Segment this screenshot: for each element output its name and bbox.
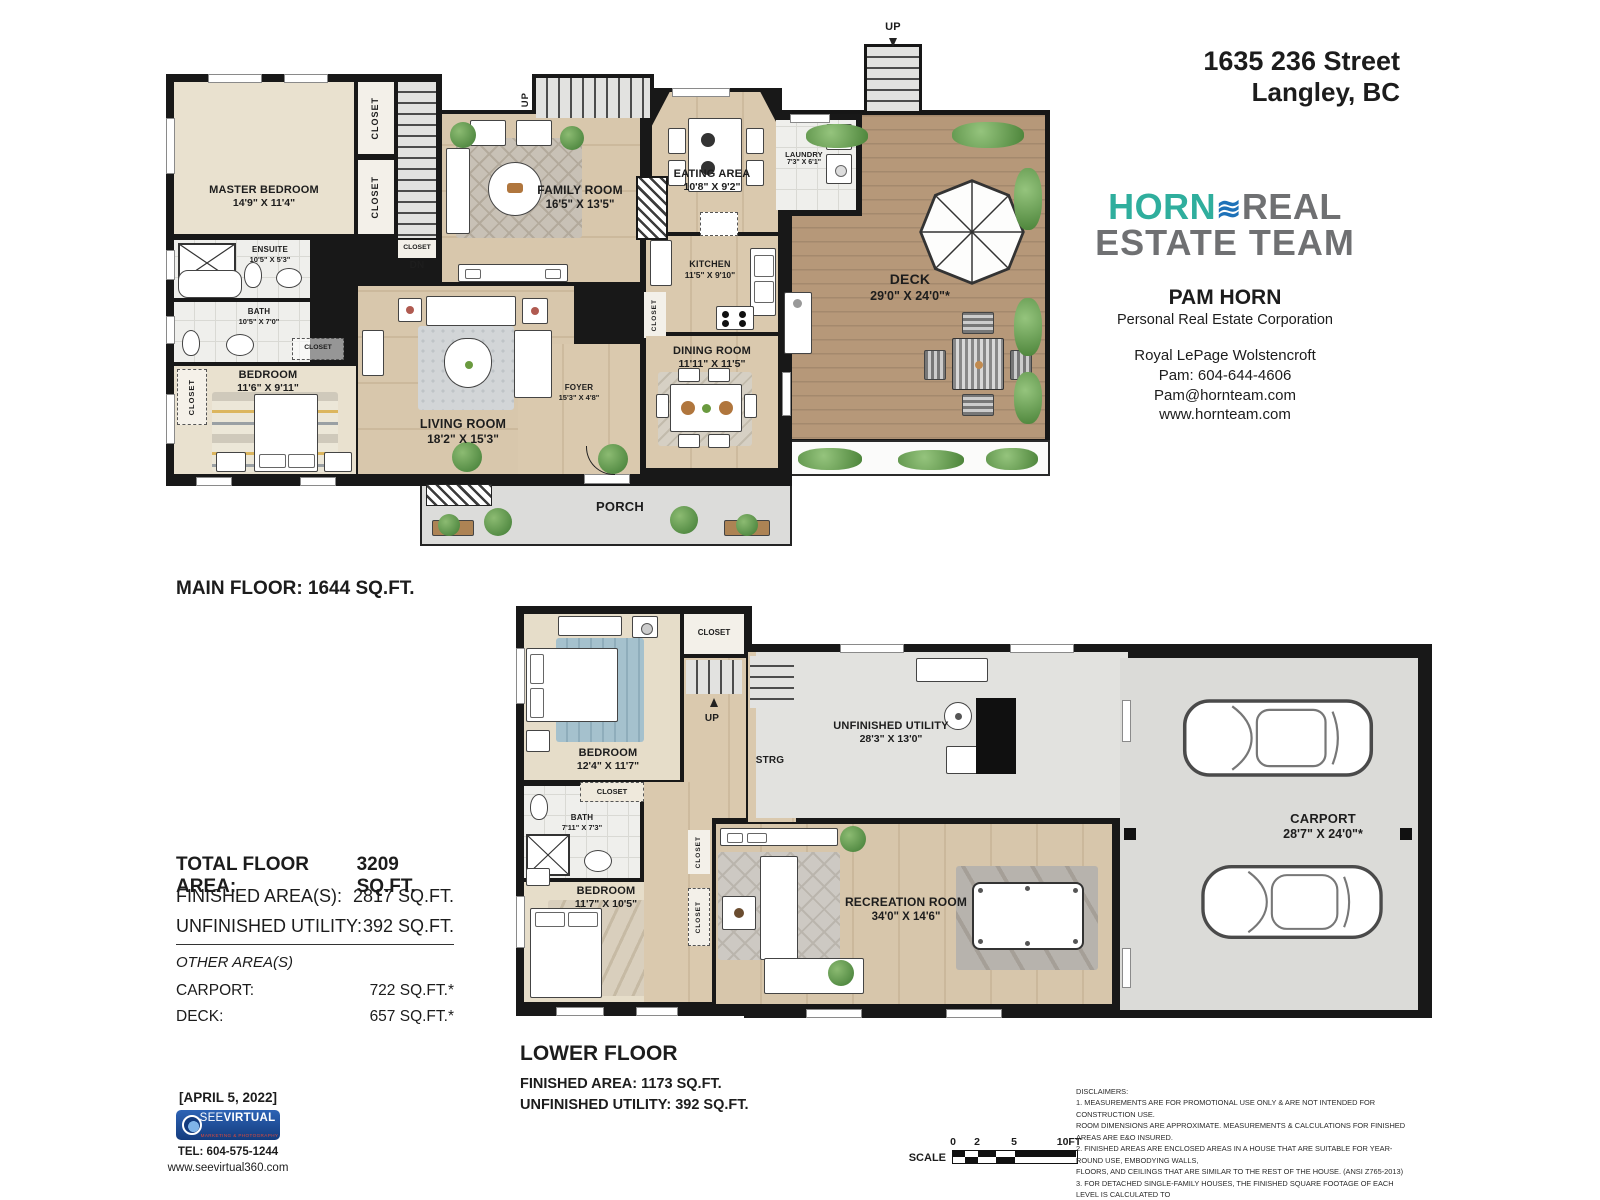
unfinished-area-row: UNFINISHED UTILITY: 392 SQ.FT. [176, 916, 454, 937]
window [166, 316, 175, 344]
closet-label: CLOSET [394, 244, 440, 251]
up-arrow-icon [710, 698, 718, 707]
door-opening [1122, 700, 1131, 742]
window [284, 74, 328, 83]
nightstand [216, 452, 246, 472]
stove [716, 306, 754, 330]
finished-area-label: FINISHED AREA(S): [176, 886, 342, 907]
shrub [798, 448, 862, 470]
window [516, 896, 525, 948]
summary-divider [176, 944, 454, 945]
stairs-down [398, 82, 436, 238]
deck-area-row: DECK: 657 SQ.FT.* [176, 1008, 454, 1026]
armchair [362, 330, 384, 376]
chair [744, 394, 757, 418]
plant [450, 122, 476, 148]
nightstand [324, 452, 352, 472]
lower-floor-title: LOWER FLOOR [520, 1042, 677, 1066]
contact-block: Royal LePage Wolstencroft Pam: 604-644-4… [1090, 346, 1360, 425]
unfinished-area-label: UNFINISHED UTILITY: [176, 916, 362, 937]
patio-umbrella [917, 177, 1027, 287]
up-arrow-icon [889, 38, 897, 47]
window [166, 118, 175, 174]
side-table [398, 298, 422, 322]
shrub [1014, 298, 1042, 356]
bed [530, 908, 602, 998]
shrub [986, 448, 1038, 470]
logo-virtual: VIRTUAL [224, 1112, 276, 1124]
plant [828, 960, 854, 986]
agent-website: www.hornteam.com [1090, 405, 1360, 425]
laundry-label: LAUNDRY7'3" X 6'1" [778, 148, 830, 170]
chair [746, 128, 764, 154]
porch-step [426, 484, 492, 506]
shrub [898, 450, 964, 470]
armchair [516, 120, 552, 146]
kitchen-island [700, 212, 738, 236]
porch-plant [736, 514, 758, 536]
other-areas-title: OTHER AREA(S) [176, 954, 293, 971]
deck-label: DECK 29'0" X 24'0"* [830, 272, 990, 304]
family-room-label: FAMILY ROOM16'5" X 13'5" [520, 182, 640, 214]
carport-label: CARPORT28'7" X 24'0"* [1228, 810, 1418, 844]
window [516, 648, 525, 704]
deck-area-value: 657 SQ.FT.* [370, 1008, 454, 1026]
agent-name: PAM HORN [1090, 286, 1360, 310]
closet-label: CLOSET [580, 787, 644, 796]
deck-stairs [864, 44, 922, 114]
closet-label: CLOSET [177, 370, 207, 424]
finished-area-value: 2817 SQ.FT. [353, 886, 454, 907]
window [672, 88, 730, 97]
porch-plant [484, 508, 512, 536]
address-line2: Langley, BC [1020, 77, 1400, 108]
agent-email: Pam@hornteam.com [1090, 386, 1360, 406]
seevirtual-tel: TEL: 604-575-1244 [150, 1146, 306, 1158]
window [946, 1009, 1002, 1018]
closet-label: CLOSET [644, 293, 666, 337]
ensuite-label: ENSUITE10'5" X 5'3" [232, 244, 308, 266]
deck-table [952, 338, 1004, 390]
closet-label: CLOSET [358, 84, 394, 152]
dining-table [670, 384, 742, 432]
window [840, 644, 904, 653]
shrub [952, 122, 1024, 148]
shrub [806, 124, 868, 148]
lower-bedroom-a-label: BEDROOM12'4" X 11'7" [538, 746, 678, 774]
carport-area-label: CARPORT: [176, 982, 254, 1000]
plant [560, 126, 584, 150]
logo-line2: ESTATE TEAM [1090, 225, 1360, 261]
kitchen-label: KITCHEN11'5" X 9'10" [664, 258, 756, 282]
seevirtual-web: www.seevirtual360.com [150, 1162, 306, 1174]
car-1 [1176, 694, 1380, 782]
disclaimer-line: 2. FINISHED AREAS ARE ENCLOSED AREAS IN … [1076, 1143, 1416, 1166]
window [196, 477, 232, 486]
strg-label: STRG [740, 754, 800, 768]
dining-room-label: DINING ROOM11'11" X 11'5" [650, 344, 774, 372]
logo-subtext: MARKETING & PHOTOGRAPHY [201, 1133, 279, 1138]
window [556, 1007, 604, 1016]
carport-area-row: CARPORT: 722 SQ.FT.* [176, 982, 454, 1000]
seevirtual-swoosh-icon [182, 1115, 202, 1135]
eating-area-label: EATING AREA10'8" X 9'2" [656, 166, 768, 196]
disclaimer-line: ROOM DIMENSIONS ARE APPROXIMATE. MEASURE… [1076, 1120, 1416, 1143]
window [636, 1007, 678, 1016]
master-bedroom-label: MASTER BEDROOM14'9" X 11'4" [194, 182, 334, 212]
window [208, 74, 262, 83]
window [806, 1009, 862, 1018]
window [300, 477, 336, 486]
dresser [558, 616, 622, 636]
deck-area-label: DECK: [176, 1008, 223, 1026]
foyer-label: FOYER15'3" X 4'8" [546, 382, 612, 404]
horn-logo: HORN≋REAL ESTATE TEAM [1090, 190, 1360, 261]
finished-area-row: FINISHED AREA(S): 2817 SQ.FT. [176, 886, 454, 907]
agent-block: PAM HORN Personal Real Estate Corporatio… [1090, 286, 1360, 328]
main-floor-caption: MAIN FLOOR: 1644 SQ.FT. [176, 578, 415, 600]
seevirtual-logo: SEEVIRTUAL MARKETING & PHOTOGRAPHY [176, 1110, 280, 1140]
deck-bench-left [924, 350, 946, 380]
window [782, 372, 791, 416]
plant [840, 826, 866, 852]
lower-bath-label: BATH7'11" X 7'3" [540, 812, 624, 834]
shrub [1014, 372, 1042, 424]
property-address: 1635 236 Street Langley, BC [1020, 46, 1400, 108]
desk-chair [632, 616, 658, 638]
coffee-table [722, 896, 756, 930]
address-line1: 1635 236 Street [1020, 46, 1400, 77]
front-door-opening [584, 474, 630, 484]
lower-finished-caption: FINISHED AREA: 1173 SQ.FT. [520, 1076, 722, 1092]
chair [678, 434, 700, 448]
toilet [182, 330, 200, 356]
utility-bench [916, 658, 988, 682]
agent-subtitle: Personal Real Estate Corporation [1090, 312, 1360, 328]
sink [276, 268, 302, 288]
closet-label: CLOSET [684, 628, 744, 637]
side-table [522, 298, 548, 324]
window [1010, 644, 1074, 653]
disclaimer-line: DISCLAIMERS: [1076, 1086, 1416, 1097]
bookcase [446, 148, 470, 234]
sink [584, 850, 612, 872]
brokerage: Royal LePage Wolstencroft [1090, 346, 1360, 366]
scale-label: SCALE [898, 1152, 946, 1164]
console-table [720, 828, 838, 846]
window [790, 114, 830, 123]
plan-date: [APRIL 5, 2022] [168, 1090, 288, 1105]
closet-label: CLOSET [688, 890, 710, 944]
chair [668, 128, 686, 154]
bathtub [178, 270, 242, 298]
logo-word-real: REAL [1242, 186, 1342, 227]
disclaimer-line: 3. FOR DETACHED SINGLE-FAMILY HOUSES, TH… [1076, 1178, 1416, 1200]
scale-bar [952, 1150, 1078, 1164]
porch-label: PORCH [560, 496, 680, 518]
window [166, 394, 175, 444]
utility-label: UNFINISHED UTILITY28'3" X 13'0" [798, 718, 984, 748]
chair [708, 434, 730, 448]
closet-label: CLOSET [292, 344, 344, 351]
living-room-label: LIVING ROOM18'2" X 15'3" [388, 416, 538, 448]
car-2 [1186, 860, 1398, 944]
porch-plant [438, 514, 460, 536]
scale-tick-0: 0 [947, 1136, 959, 1148]
sofa [760, 856, 798, 960]
up-label: UP [684, 712, 740, 726]
stairs-up-main [536, 78, 650, 118]
scale-tick-5: 5 [1008, 1136, 1020, 1148]
agent-phone: Pam: 604-644-4606 [1090, 366, 1360, 386]
deck-bench-top [962, 312, 994, 334]
lower-bedroom-b-label: BEDROOM11'7" X 10'5" [536, 884, 676, 912]
bed [526, 648, 618, 722]
disclaimer-line: FLOORS, AND CEILINGS THAT ARE SIMILAR TO… [1076, 1166, 1416, 1177]
chair [656, 394, 669, 418]
disclaimers: DISCLAIMERS: 1. MEASUREMENTS ARE FOR PRO… [1076, 1086, 1416, 1200]
bedroom-2-label: BEDROOM11'6" X 9'11" [210, 368, 326, 396]
deck-bench-bottom [962, 394, 994, 416]
carport-area-value: 722 SQ.FT.* [370, 982, 454, 1000]
sink [226, 334, 254, 356]
logo-see: SEE [200, 1112, 224, 1124]
egg-chair [444, 338, 492, 388]
deck-stairs-up-label: UP [858, 20, 928, 36]
lower-unfinished-caption: UNFINISHED UTILITY: 392 SQ.FT. [520, 1097, 749, 1113]
dn-label: DN [396, 260, 438, 272]
logo-word-horn: HORN [1108, 186, 1216, 227]
console-table [458, 264, 568, 282]
up-label: UP [518, 82, 534, 118]
sofa [426, 296, 516, 326]
shrub [1014, 168, 1042, 230]
unfinished-area-value: 392 SQ.FT. [363, 916, 454, 937]
stairs-up-lower [686, 660, 742, 694]
utility-box [946, 746, 980, 774]
scale-tick-2: 2 [971, 1136, 983, 1148]
bbq-cart [784, 292, 812, 354]
rec-room-label: RECREATION ROOM34'0" X 14'6" [808, 894, 1004, 926]
disclaimer-line: 1. MEASUREMENTS ARE FOR PROMOTIONAL USE … [1076, 1097, 1416, 1120]
door-opening [1122, 948, 1131, 988]
window [166, 250, 175, 280]
storage-stairs [750, 656, 794, 708]
main-bath-label: BATH10'5" X 7'0" [216, 306, 302, 328]
bed [254, 394, 318, 472]
floorplan-page: 1635 236 Street Langley, BC HORN≋REAL ES… [0, 0, 1600, 1200]
carport-post [1124, 828, 1136, 840]
closet-label: CLOSET [358, 162, 394, 232]
closet-label: CLOSET [688, 831, 710, 873]
